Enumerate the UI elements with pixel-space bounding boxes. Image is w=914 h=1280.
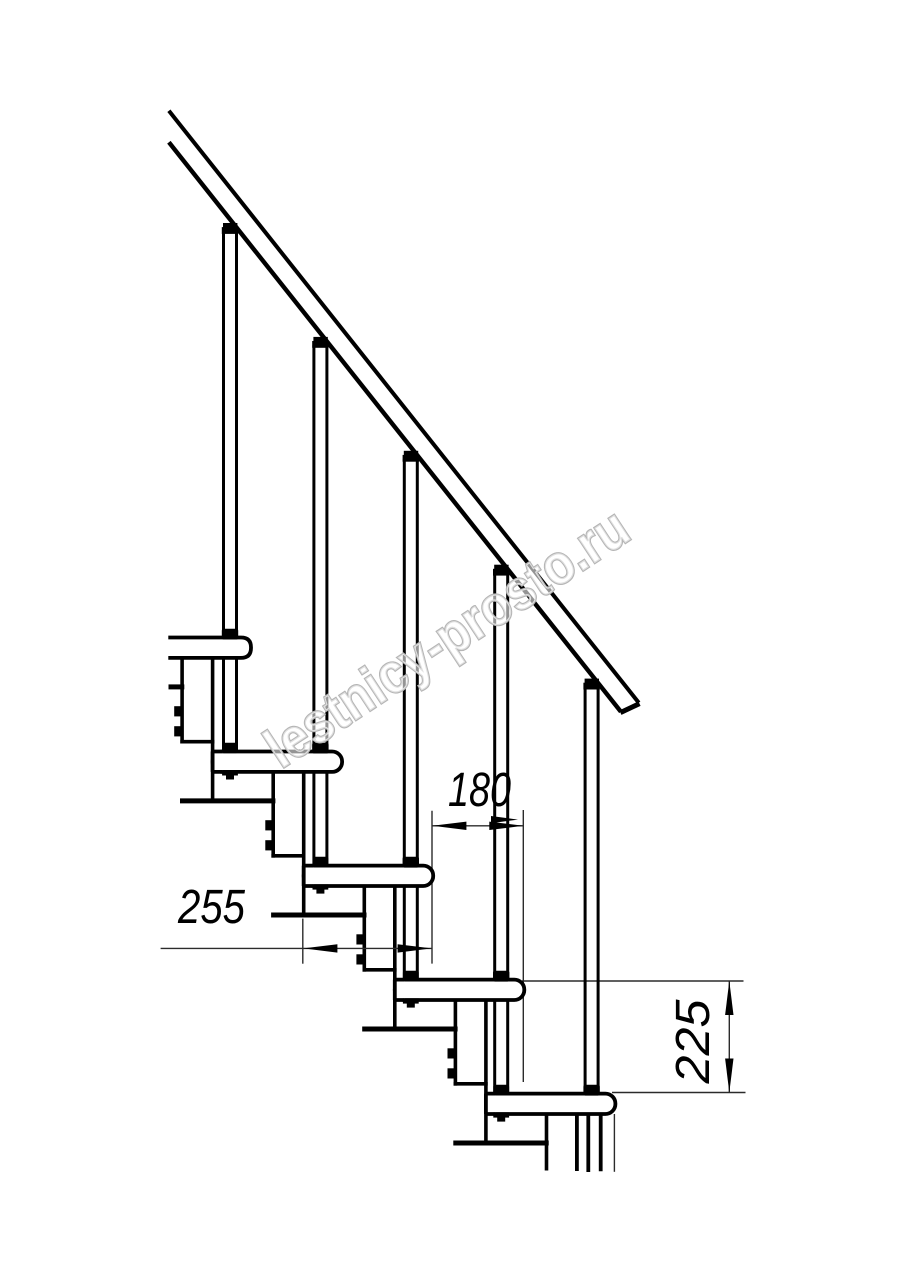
svg-text:225: 225: [667, 999, 720, 1084]
svg-text:180: 180: [448, 764, 511, 817]
svg-text:255: 255: [177, 881, 245, 934]
